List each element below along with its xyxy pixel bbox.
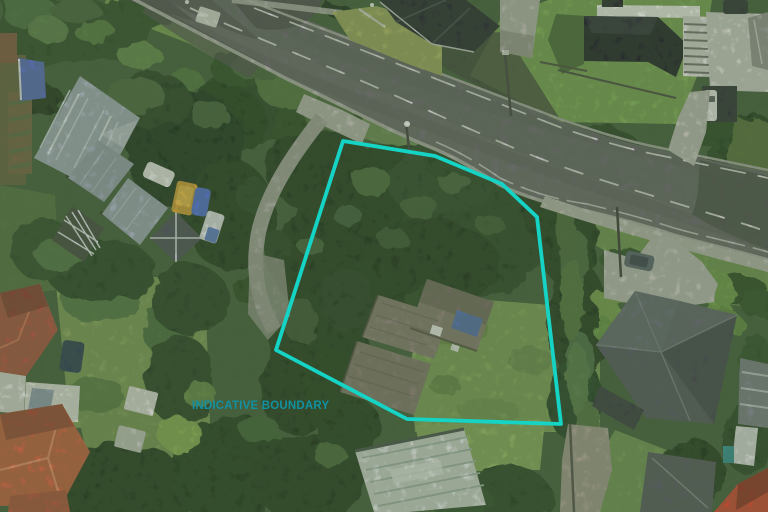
svg-text:INDICATIVE BOUNDARY: INDICATIVE BOUNDARY [192, 400, 329, 412]
